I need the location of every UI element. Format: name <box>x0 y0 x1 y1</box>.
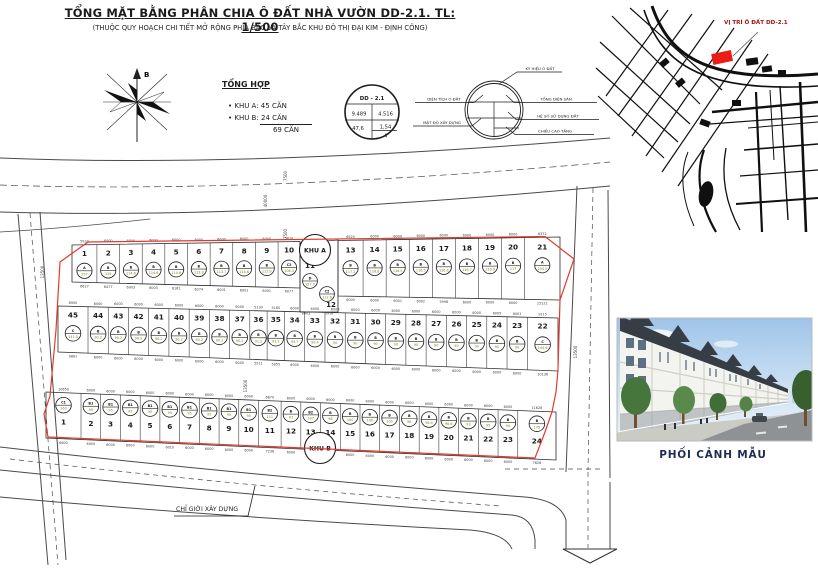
svg-text:111: 111 <box>267 415 273 419</box>
svg-text:B: B <box>293 334 296 338</box>
svg-text:B: B <box>374 336 377 340</box>
svg-text:7628: 7628 <box>533 461 542 465</box>
road-exit-arrow <box>563 549 617 563</box>
svg-text:20: 20 <box>444 433 454 442</box>
svg-text:6077: 6077 <box>285 290 294 294</box>
svg-text:17: 17 <box>384 430 394 439</box>
svg-text:40000: 40000 <box>263 194 268 207</box>
svg-text:B: B <box>496 339 499 343</box>
svg-text:15: 15 <box>393 245 403 254</box>
svg-text:114.6: 114.6 <box>239 270 249 274</box>
svg-text:6000: 6000 <box>452 310 461 314</box>
svg-text:6000: 6000 <box>326 398 335 402</box>
svg-text:6000: 6000 <box>385 455 394 459</box>
svg-text:B: B <box>536 419 539 423</box>
svg-text:4: 4 <box>151 248 156 257</box>
svg-text:10650: 10650 <box>58 387 69 391</box>
svg-text:6000: 6000 <box>94 302 103 306</box>
svg-text:B: B <box>265 263 268 267</box>
svg-text:B: B <box>218 332 221 336</box>
svg-text:C2: C2 <box>287 263 292 267</box>
svg-text:6000: 6000 <box>472 311 481 315</box>
svg-text:44: 44 <box>93 311 103 320</box>
svg-text:6000: 6000 <box>440 234 449 238</box>
svg-text:B: B <box>507 418 510 422</box>
svg-text:95: 95 <box>108 409 112 413</box>
svg-text:116.8: 116.8 <box>370 269 380 273</box>
svg-text:26: 26 <box>451 320 461 329</box>
svg-text:90.2: 90.2 <box>195 338 203 342</box>
svg-text:B: B <box>175 265 178 269</box>
svg-text:D: D <box>309 276 312 280</box>
svg-text:40: 40 <box>174 313 184 322</box>
map-location-label: VỊ TRÍ Ô ĐẤT DD-2.1 <box>724 20 818 26</box>
svg-text:20: 20 <box>508 243 518 252</box>
svg-text:B: B <box>394 337 397 341</box>
svg-text:B: B <box>388 413 391 417</box>
summary-total: 69 CĂN <box>260 124 312 134</box>
svg-text:6001: 6001 <box>513 312 522 316</box>
svg-text:6000: 6000 <box>165 392 174 396</box>
svg-text:6000: 6000 <box>513 371 522 375</box>
svg-text:90: 90 <box>434 344 438 348</box>
north-arrow-icon <box>133 68 141 79</box>
map-plot-highlight <box>711 50 733 65</box>
svg-text:6000: 6000 <box>244 449 253 453</box>
svg-text:30: 30 <box>370 318 380 327</box>
svg-text:B: B <box>455 338 458 342</box>
svg-text:15121: 15121 <box>537 302 548 306</box>
svg-text:6: 6 <box>167 422 172 431</box>
svg-text:KHU A: KHU A <box>304 248 326 255</box>
svg-text:6000: 6000 <box>126 390 135 394</box>
svg-text:6000: 6000 <box>432 310 441 314</box>
svg-text:5130: 5130 <box>254 306 263 310</box>
svg-text:117.2: 117.2 <box>346 270 356 274</box>
svg-text:8900: 8900 <box>69 301 78 305</box>
svg-text:B: B <box>435 337 438 341</box>
svg-text:93.7: 93.7 <box>291 340 299 344</box>
svg-text:B: B <box>349 412 352 416</box>
svg-text:6000: 6000 <box>346 453 355 457</box>
svg-text:6000: 6000 <box>463 233 472 237</box>
svg-text:6000: 6000 <box>371 308 380 312</box>
svg-text:160: 160 <box>60 407 66 411</box>
svg-text:116.5: 116.5 <box>416 269 426 273</box>
svg-text:8: 8 <box>207 423 212 432</box>
svg-text:90.2: 90.2 <box>175 337 183 341</box>
svg-text:6000: 6000 <box>134 303 143 307</box>
svg-text:93: 93 <box>466 423 470 427</box>
svg-text:6000: 6000 <box>195 304 204 308</box>
svg-text:254.5: 254.5 <box>537 267 547 271</box>
svg-text:91.2: 91.2 <box>255 339 263 343</box>
svg-text:6000: 6000 <box>114 356 123 360</box>
svg-text:35: 35 <box>271 315 281 324</box>
svg-text:112.6: 112.6 <box>322 296 332 300</box>
svg-text:1: 1 <box>61 418 66 427</box>
svg-text:90: 90 <box>414 343 418 347</box>
svg-text:116.5: 116.5 <box>393 269 403 273</box>
svg-text:114.6: 114.6 <box>171 271 181 275</box>
svg-text:38: 38 <box>214 314 224 323</box>
svg-text:6000: 6000 <box>463 300 472 304</box>
key-label-area: DIỆN TÍCH Ô ĐẤT <box>427 97 461 102</box>
svg-text:6372: 6372 <box>538 232 547 236</box>
map-label-leader <box>733 32 758 56</box>
svg-text:6000: 6000 <box>290 306 299 310</box>
svg-text:6000: 6000 <box>87 442 96 446</box>
svg-text:10136: 10136 <box>537 372 548 376</box>
summary-item-khu-a: KHU A: 45 CĂN <box>228 100 287 112</box>
svg-text:6000: 6000 <box>509 233 518 237</box>
svg-text:6274: 6274 <box>194 287 203 291</box>
svg-text:6000: 6000 <box>391 367 400 371</box>
north-label: B <box>144 71 149 79</box>
svg-text:1: 1 <box>82 249 87 258</box>
symbol-built-area: 4.516 <box>378 112 393 118</box>
svg-text:19: 19 <box>424 432 434 441</box>
build-line-label: CHỈ GIỚI XÂY DỰNG <box>176 506 238 513</box>
svg-text:7: 7 <box>219 247 224 256</box>
svg-text:B: B <box>107 266 110 270</box>
svg-text:B1: B1 <box>167 405 173 409</box>
svg-text:100: 100 <box>367 419 373 423</box>
svg-text:90: 90 <box>353 342 357 346</box>
svg-text:6000: 6000 <box>235 361 244 365</box>
svg-text:11: 11 <box>265 426 275 435</box>
svg-text:5911: 5911 <box>254 362 263 366</box>
svg-text:6002: 6002 <box>416 299 425 303</box>
svg-text:98: 98 <box>407 420 411 424</box>
svg-text:C2: C2 <box>325 289 330 293</box>
svg-text:6000: 6000 <box>225 394 234 398</box>
svg-text:6000: 6000 <box>235 305 244 309</box>
svg-text:106.3: 106.3 <box>284 269 294 273</box>
svg-text:B: B <box>137 330 140 334</box>
svg-text:45: 45 <box>68 310 78 319</box>
svg-text:6000: 6000 <box>412 309 421 313</box>
svg-text:97: 97 <box>289 416 293 420</box>
svg-text:43: 43 <box>113 311 123 320</box>
svg-text:6000: 6000 <box>472 370 481 374</box>
svg-text:5: 5 <box>148 421 153 430</box>
svg-text:B: B <box>487 417 490 421</box>
svg-text:6000: 6000 <box>370 299 379 303</box>
svg-text:6000: 6000 <box>205 393 214 397</box>
perspective-photo <box>617 306 818 441</box>
svg-text:10: 10 <box>244 425 254 434</box>
svg-text:4: 4 <box>128 420 133 429</box>
svg-text:23: 23 <box>512 321 522 330</box>
top-road <box>0 138 610 232</box>
svg-text:95: 95 <box>89 408 93 412</box>
svg-text:21: 21 <box>463 434 473 443</box>
svg-text:23: 23 <box>503 435 513 444</box>
svg-text:6000: 6000 <box>195 359 204 363</box>
svg-text:116.7: 116.7 <box>462 268 472 272</box>
svg-text:6000: 6000 <box>486 301 495 305</box>
svg-text:117: 117 <box>510 267 516 271</box>
svg-text:B: B <box>97 329 100 333</box>
svg-text:B: B <box>415 337 418 341</box>
svg-text:6000: 6000 <box>391 309 400 313</box>
svg-text:B: B <box>516 339 519 343</box>
svg-text:6000: 6000 <box>175 359 184 363</box>
key-label-floor-area: TỔNG DIỆN SÀN <box>539 97 572 102</box>
svg-text:6000: 6000 <box>346 298 355 302</box>
svg-text:6000: 6000 <box>412 368 421 372</box>
svg-text:B: B <box>117 330 120 334</box>
svg-text:6000: 6000 <box>464 458 473 462</box>
svg-text:B: B <box>257 333 260 337</box>
svg-text:116.6: 116.6 <box>439 268 449 272</box>
svg-text:5998: 5998 <box>440 300 449 304</box>
svg-text:6003: 6003 <box>127 286 136 290</box>
svg-text:6001: 6001 <box>240 289 249 293</box>
svg-text:39: 39 <box>194 313 204 322</box>
svg-text:6000: 6000 <box>215 305 224 309</box>
svg-text:6627: 6627 <box>80 284 89 288</box>
svg-text:13500: 13500 <box>40 265 45 278</box>
svg-text:6000: 6000 <box>504 460 513 464</box>
svg-text:34: 34 <box>290 316 300 325</box>
svg-text:6000: 6000 <box>185 392 194 396</box>
svg-text:7500: 7500 <box>283 170 288 181</box>
svg-text:B: B <box>369 413 372 417</box>
plot-symbol-key: KÝ HIỆU Ô ĐẤT DIỆN TÍCH Ô ĐẤT MẬT ĐỘ XÂY… <box>413 66 599 139</box>
svg-text:9: 9 <box>264 246 269 255</box>
svg-text:25: 25 <box>472 320 482 329</box>
svg-text:3: 3 <box>108 420 113 429</box>
svg-text:9: 9 <box>226 424 231 433</box>
svg-text:5160: 5160 <box>271 306 280 310</box>
svg-text:B: B <box>466 262 469 266</box>
svg-text:6000: 6000 <box>351 308 360 312</box>
svg-text:B1: B1 <box>226 407 232 411</box>
key-label-far: HỆ SỐ SỬ DỤNG ĐẤT <box>537 114 579 119</box>
svg-text:6000: 6000 <box>287 396 296 400</box>
svg-text:B2: B2 <box>308 410 314 414</box>
svg-text:42: 42 <box>133 312 143 321</box>
svg-text:24: 24 <box>492 321 502 330</box>
svg-text:32: 32 <box>330 317 340 326</box>
svg-text:6000: 6000 <box>484 459 493 463</box>
svg-text:B: B <box>243 264 246 268</box>
svg-text:90: 90 <box>394 343 398 347</box>
svg-text:28: 28 <box>411 319 421 328</box>
svg-text:7236: 7236 <box>265 450 274 454</box>
svg-text:6000: 6000 <box>106 389 115 393</box>
svg-text:6000: 6000 <box>215 360 224 364</box>
svg-text:129: 129 <box>105 272 111 276</box>
svg-text:6000: 6000 <box>452 369 461 373</box>
svg-text:6000: 6000 <box>287 451 296 455</box>
svg-text:B: B <box>467 416 470 420</box>
svg-text:6000: 6000 <box>149 239 158 243</box>
svg-text:B: B <box>396 263 399 267</box>
svg-text:90.2: 90.2 <box>94 335 102 339</box>
svg-text:95: 95 <box>227 413 231 417</box>
svg-text:90.2: 90.2 <box>115 336 123 340</box>
svg-text:5955: 5955 <box>271 362 280 366</box>
page-subtitle: (THUỘC QUY HOẠCH CHI TIẾT MỞ RỘNG PHÍA B… <box>40 24 480 32</box>
svg-text:6000: 6000 <box>244 395 253 399</box>
svg-text:90.2: 90.2 <box>216 338 224 342</box>
svg-text:90.2: 90.2 <box>155 337 163 341</box>
svg-text:B: B <box>329 411 332 415</box>
svg-text:B: B <box>178 331 181 335</box>
svg-text:7: 7 <box>187 423 192 432</box>
svg-text:10: 10 <box>284 246 294 255</box>
svg-text:6000: 6000 <box>351 365 360 369</box>
svg-text:6000: 6000 <box>366 400 375 404</box>
key-label-symbol: KÝ HIỆU Ô ĐẤT <box>526 66 556 71</box>
svg-text:B: B <box>512 261 515 265</box>
svg-text:95: 95 <box>187 412 191 416</box>
svg-text:113.8: 113.8 <box>194 271 204 275</box>
svg-text:B: B <box>238 333 241 337</box>
svg-text:6000: 6000 <box>154 358 163 362</box>
svg-text:6000: 6000 <box>106 443 115 447</box>
svg-text:90: 90 <box>495 345 499 349</box>
svg-text:18: 18 <box>404 431 414 440</box>
symbol-density: 47,6 <box>352 126 364 132</box>
svg-text:6000: 6000 <box>311 364 320 368</box>
symbol-area: 9.489 <box>352 112 367 118</box>
svg-text:6000: 6000 <box>290 363 299 367</box>
key-label-density: MẬT ĐỘ XÂY DỰNG <box>423 120 461 125</box>
svg-text:90.2: 90.2 <box>135 336 143 340</box>
key-label-height: CHIỀU CAO TẦNG <box>538 129 572 134</box>
svg-text:6000: 6000 <box>366 454 375 458</box>
svg-text:B: B <box>152 265 155 269</box>
svg-text:6000: 6000 <box>154 303 163 307</box>
svg-text:41: 41 <box>154 312 164 321</box>
svg-text:B: B <box>373 263 376 267</box>
svg-text:100: 100 <box>347 418 353 422</box>
svg-text:B: B <box>130 265 133 269</box>
svg-text:13500: 13500 <box>573 345 578 358</box>
bottom-roads <box>0 447 617 563</box>
svg-text:16: 16 <box>416 244 426 253</box>
svg-text:15: 15 <box>345 429 355 438</box>
svg-text:B: B <box>475 338 478 342</box>
svg-text:6010: 6010 <box>165 445 174 449</box>
svg-text:141.5: 141.5 <box>68 335 78 339</box>
svg-text:6000: 6000 <box>464 403 473 407</box>
svg-text:6000: 6000 <box>134 357 143 361</box>
svg-text:6000: 6000 <box>126 444 135 448</box>
svg-text:21: 21 <box>537 242 547 251</box>
svg-text:94: 94 <box>506 424 510 428</box>
svg-text:12: 12 <box>326 301 336 309</box>
right-road <box>566 186 610 478</box>
svg-text:95: 95 <box>207 412 211 416</box>
svg-text:B: B <box>198 332 201 336</box>
svg-text:7500: 7500 <box>283 228 288 239</box>
svg-text:8: 8 <box>242 246 247 255</box>
svg-text:90: 90 <box>515 346 519 350</box>
svg-text:27: 27 <box>431 319 441 328</box>
svg-text:6000: 6000 <box>484 404 493 408</box>
svg-text:95: 95 <box>486 423 490 427</box>
svg-text:113.7: 113.7 <box>217 270 227 274</box>
svg-text:12: 12 <box>286 427 296 436</box>
svg-text:B: B <box>158 331 161 335</box>
svg-text:95: 95 <box>246 414 250 418</box>
svg-text:6000: 6000 <box>444 457 453 461</box>
svg-text:6000: 6000 <box>509 301 518 305</box>
svg-text:6000: 6000 <box>425 457 434 461</box>
svg-text:B1: B1 <box>108 402 114 406</box>
svg-text:5918: 5918 <box>325 312 334 316</box>
svg-text:B: B <box>428 415 431 419</box>
svg-text:13500: 13500 <box>243 379 248 392</box>
svg-text:6000: 6000 <box>87 389 96 393</box>
site-plan-canvas: 1A257593366272B129600064773B114.66000600… <box>0 0 818 576</box>
svg-text:93.2: 93.2 <box>272 340 280 344</box>
svg-text:8003: 8003 <box>302 312 311 316</box>
svg-text:14: 14 <box>370 245 380 254</box>
svg-text:B: B <box>443 262 446 266</box>
svg-text:6000: 6000 <box>146 444 155 448</box>
svg-text:6000: 6000 <box>331 365 340 369</box>
svg-text:107: 107 <box>307 416 313 420</box>
svg-text:115.9: 115.9 <box>262 270 272 274</box>
svg-text:90.2: 90.2 <box>236 339 244 343</box>
svg-text:6000: 6000 <box>371 366 380 370</box>
svg-text:6000: 6000 <box>432 368 441 372</box>
svg-text:90: 90 <box>475 345 479 349</box>
svg-text:6001: 6001 <box>393 299 402 303</box>
svg-text:19: 19 <box>485 243 495 252</box>
svg-text:116.9: 116.9 <box>485 268 495 272</box>
svg-text:257: 257 <box>81 272 87 276</box>
svg-text:17: 17 <box>439 244 449 253</box>
perspective-caption: PHỐI CẢNH MẪU <box>613 449 813 461</box>
svg-text:6000: 6000 <box>405 456 414 460</box>
svg-text:6870: 6870 <box>265 396 274 400</box>
svg-text:6000: 6000 <box>225 448 234 452</box>
symbol-far: 1,54 <box>380 125 392 131</box>
svg-text:18: 18 <box>462 243 472 252</box>
svg-text:13: 13 <box>345 245 355 254</box>
summary-heading: TỔNG HỢP <box>222 80 270 89</box>
svg-text:95: 95 <box>128 409 132 413</box>
svg-text:B2: B2 <box>267 409 273 413</box>
svg-text:22: 22 <box>538 322 548 331</box>
svg-text:B: B <box>354 336 357 340</box>
svg-text:6000: 6000 <box>311 307 320 311</box>
svg-text:175: 175 <box>534 425 540 429</box>
compass-rose: B <box>103 68 171 142</box>
svg-text:6000: 6000 <box>385 400 394 404</box>
plot-bands: 1A257593366272B129600064773B114.66000600… <box>40 170 578 465</box>
svg-text:6000: 6000 <box>94 356 103 360</box>
svg-text:6001: 6001 <box>217 288 226 292</box>
drawing-sheet: 1A257593366272B129600064773B114.66000600… <box>0 0 818 576</box>
svg-text:36: 36 <box>253 315 263 324</box>
svg-text:B1: B1 <box>148 404 154 408</box>
svg-text:B: B <box>489 262 492 266</box>
svg-text:6000: 6000 <box>444 403 453 407</box>
svg-text:B: B <box>290 410 293 414</box>
svg-text:6000: 6000 <box>346 399 355 403</box>
svg-text:B1: B1 <box>88 402 94 406</box>
svg-text:6000: 6000 <box>185 446 194 450</box>
svg-text:B: B <box>408 414 411 418</box>
